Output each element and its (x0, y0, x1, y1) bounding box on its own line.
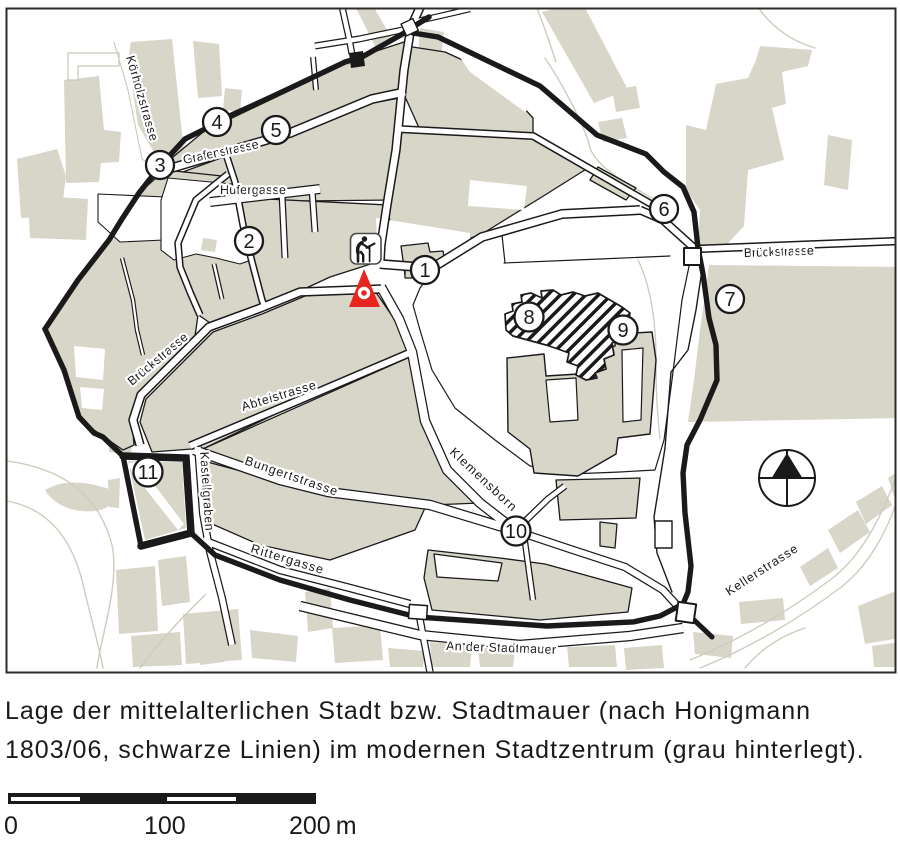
svg-text:3: 3 (154, 155, 165, 177)
svg-text:7: 7 (724, 289, 735, 311)
svg-text:1: 1 (419, 260, 430, 282)
svg-text:4: 4 (211, 112, 222, 134)
svg-text:9: 9 (617, 320, 628, 342)
svg-text:Hufergasse: Hufergasse (220, 183, 286, 197)
svg-text:8: 8 (523, 307, 534, 329)
svg-text:5: 5 (270, 120, 281, 142)
svg-text:2: 2 (243, 231, 254, 253)
svg-text:6: 6 (658, 199, 669, 221)
svg-text:11: 11 (138, 462, 159, 484)
svg-text:Brückstrasse: Brückstrasse (744, 244, 814, 260)
svg-text:10: 10 (505, 521, 527, 543)
